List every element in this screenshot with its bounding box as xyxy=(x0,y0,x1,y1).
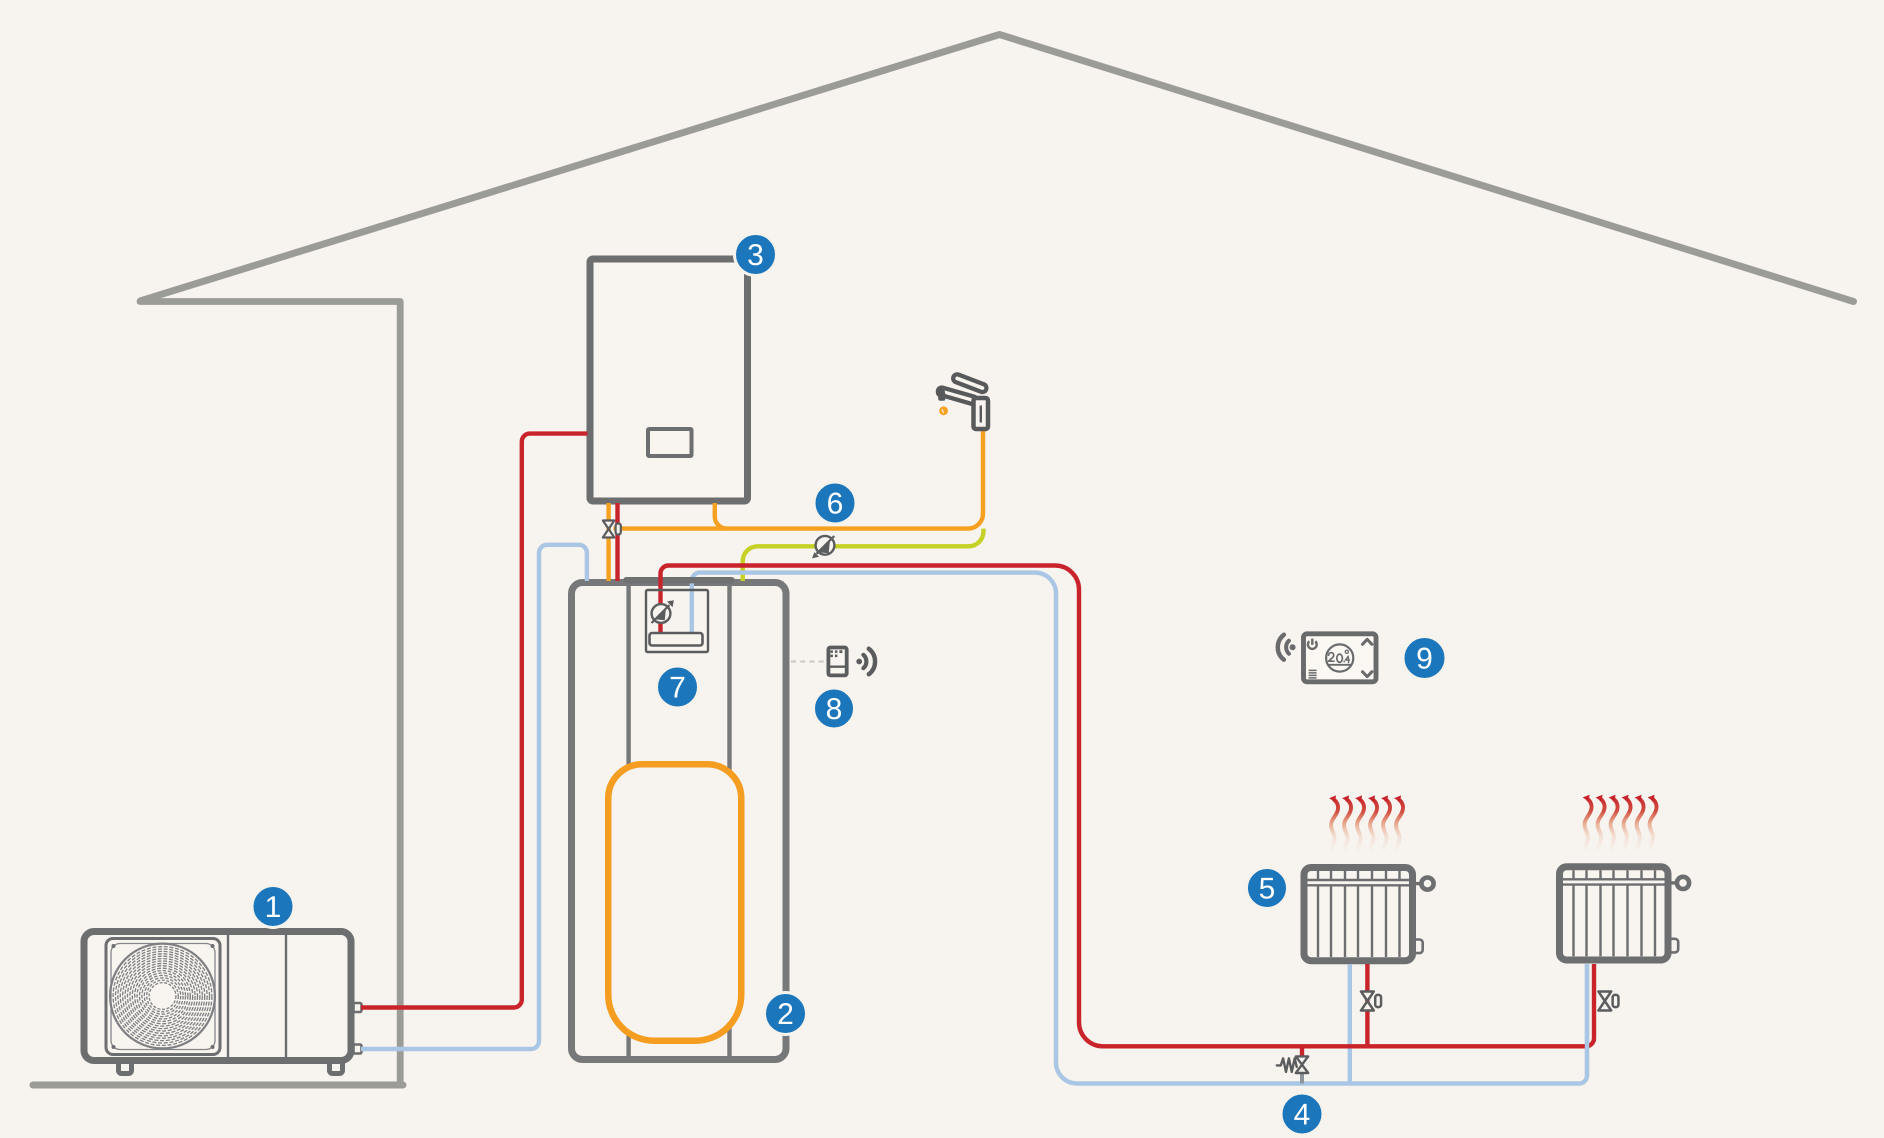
svg-text:4: 4 xyxy=(1294,1098,1311,1131)
svg-text:2: 2 xyxy=(777,998,794,1031)
svg-text:8: 8 xyxy=(826,693,843,726)
svg-text:3: 3 xyxy=(747,239,764,272)
svg-text:1: 1 xyxy=(265,891,282,924)
svg-text:5: 5 xyxy=(1259,872,1276,905)
svg-text:9: 9 xyxy=(1416,642,1433,675)
svg-text:7: 7 xyxy=(669,671,686,704)
svg-text:6: 6 xyxy=(827,487,844,520)
